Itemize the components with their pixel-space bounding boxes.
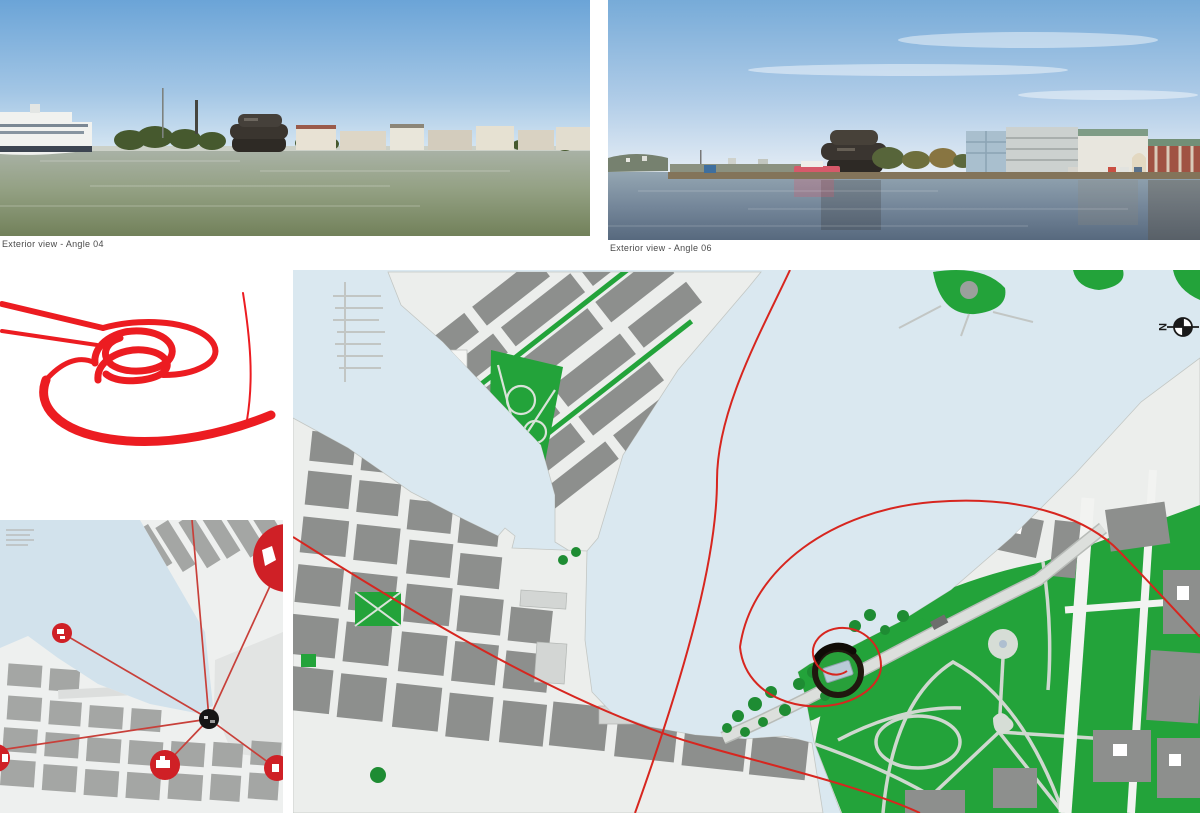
site-plan-map: N — [293, 270, 1200, 813]
concept-sketch-panel — [0, 268, 283, 518]
presentation-board: Exterior view - Angle 04 — [0, 0, 1200, 813]
ribbon-thin-tail — [243, 293, 251, 420]
ribbon-line-2 — [2, 331, 97, 345]
sea — [0, 150, 590, 236]
exterior-photo-angle-04 — [0, 0, 590, 236]
ribbon-link — [46, 360, 95, 380]
church-spire — [195, 100, 198, 134]
marina-piers — [333, 282, 385, 382]
museum-building — [230, 114, 288, 152]
large-city-map: N — [293, 270, 1200, 813]
site-dot — [199, 709, 219, 729]
ribbon-sweep — [44, 380, 271, 441]
red-ribbon-sketch — [0, 268, 283, 518]
small-city-map — [0, 520, 283, 813]
waterfront-rendering-left — [0, 0, 590, 236]
north-label: N — [1156, 323, 1168, 331]
museum-sign — [244, 118, 258, 121]
caption-angle-06: Exterior view - Angle 06 — [610, 243, 712, 253]
caption-angle-04: Exterior view - Angle 04 — [2, 239, 104, 249]
waterfront-rendering-right — [608, 0, 1200, 240]
mast — [162, 88, 164, 138]
exterior-photo-angle-06 — [608, 0, 1200, 240]
landmark-diagram-map — [0, 520, 283, 813]
ribbon-line-1 — [2, 304, 103, 328]
